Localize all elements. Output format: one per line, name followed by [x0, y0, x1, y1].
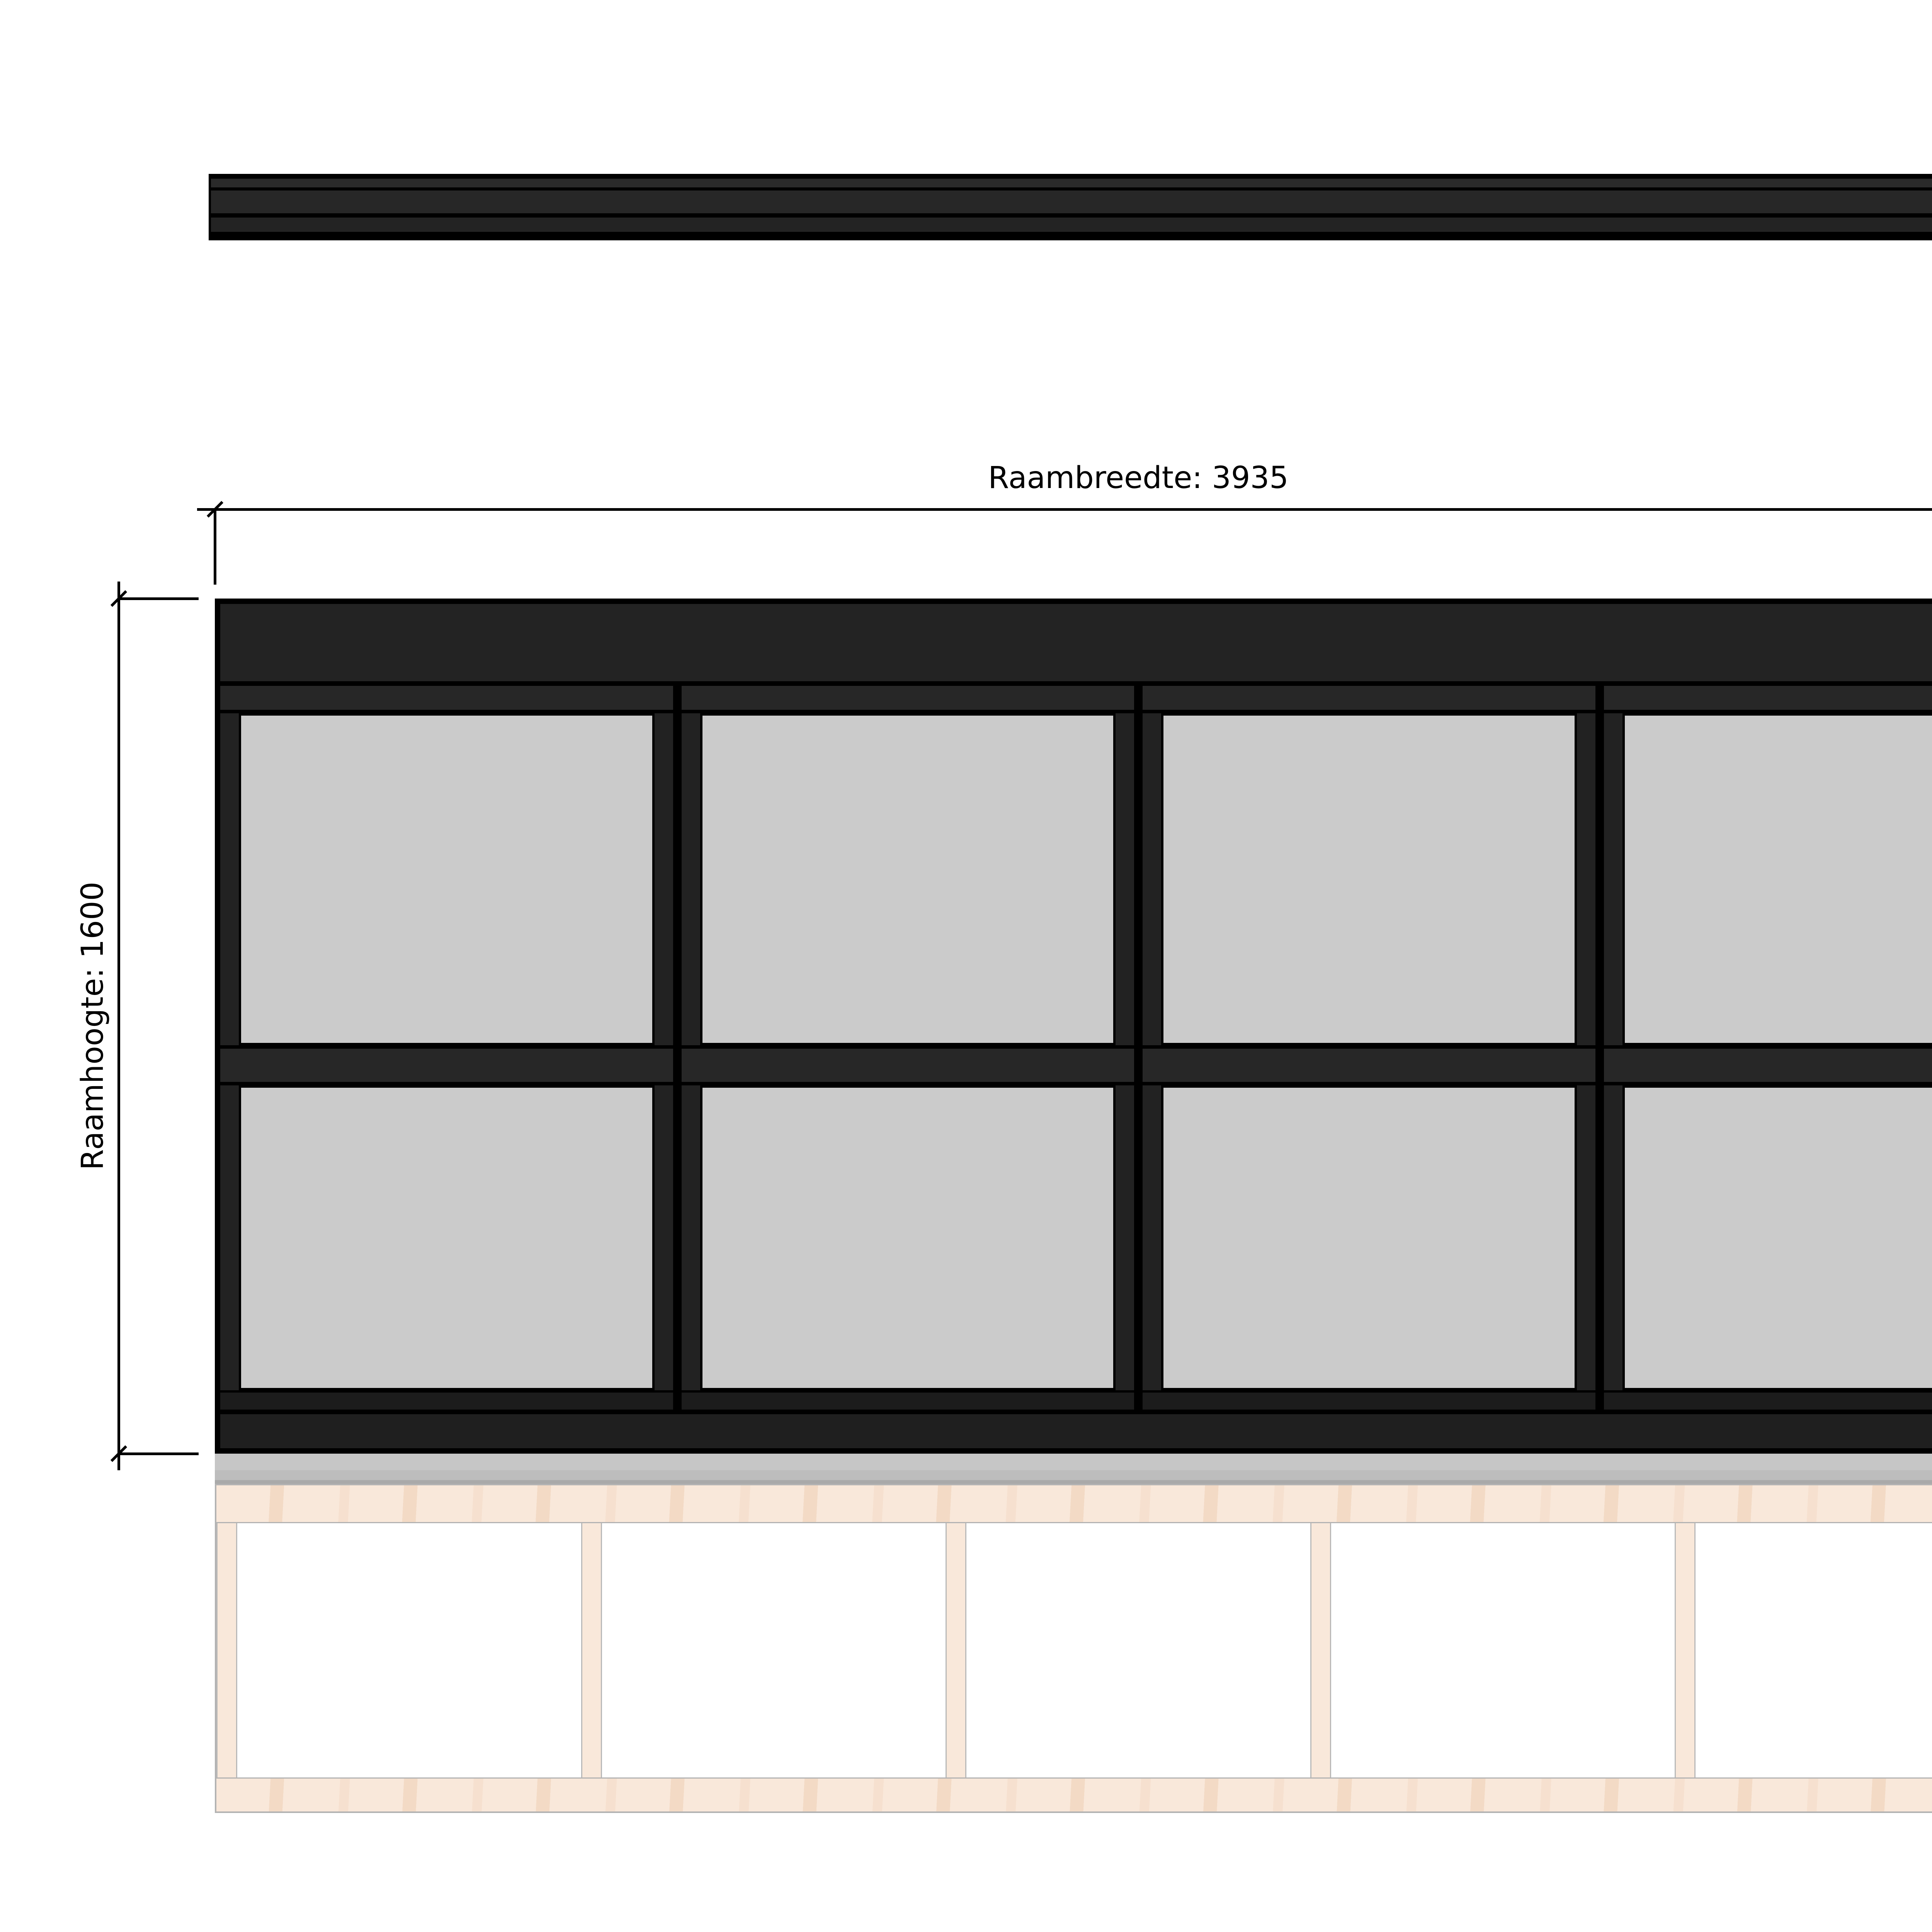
wood-stud [1675, 1523, 1696, 1777]
glass-pane-lower [1161, 1085, 1577, 1390]
dim-line [197, 508, 1932, 511]
wood-stud-frame [215, 1484, 1932, 1813]
column-mid-rail [682, 1045, 1134, 1085]
column-top-rail [682, 686, 1134, 713]
dim-label-raambreedte: Raambreedte: 3935 [988, 463, 1289, 493]
column-top-rail [1143, 686, 1595, 713]
column-mid-rail [1604, 1045, 1932, 1085]
wood-bottom-plate [216, 1777, 1932, 1811]
dim-label-raamhoogte: Raamhoogte: 1600 [78, 882, 108, 1170]
column-top-rail [220, 686, 673, 713]
glass-column [1143, 686, 1595, 1410]
glass-pane-lower [700, 1085, 1116, 1390]
glass-pane-upper [1161, 713, 1577, 1045]
wood-top-plate [216, 1485, 1932, 1523]
wood-stud [946, 1523, 966, 1777]
dim-extension [117, 1452, 199, 1455]
wood-stud [1310, 1523, 1331, 1777]
column-bottom-rail [220, 1390, 673, 1410]
elevation-bottom-rail [220, 1410, 1932, 1448]
column-bottom-rail [682, 1390, 1134, 1410]
glass-column [1604, 686, 1932, 1410]
glass-wall-elevation [215, 599, 1932, 1454]
dim-line [117, 582, 120, 1470]
glass-column [682, 686, 1134, 1410]
dim-extension [117, 597, 199, 600]
glass-pane-upper [700, 713, 1116, 1045]
column-mid-rail [1143, 1045, 1595, 1085]
wood-stud [216, 1523, 237, 1777]
column-bottom-rail [1604, 1390, 1932, 1410]
top-beam-profile [209, 174, 1932, 240]
glass-pane-lower [239, 1085, 655, 1390]
glass-pane-upper [239, 713, 655, 1045]
glass-pane-lower [1622, 1085, 1932, 1390]
column-mid-rail [220, 1045, 673, 1085]
sill-strip [215, 1454, 1932, 1484]
glass-column-row [220, 686, 1932, 1410]
glass-pane-upper [1622, 713, 1932, 1045]
wood-stud [581, 1523, 602, 1777]
column-top-rail [1604, 686, 1932, 713]
glass-column [220, 686, 673, 1410]
column-bottom-rail [1143, 1390, 1595, 1410]
elevation-top-rail [220, 604, 1932, 686]
dim-extension [214, 509, 216, 585]
